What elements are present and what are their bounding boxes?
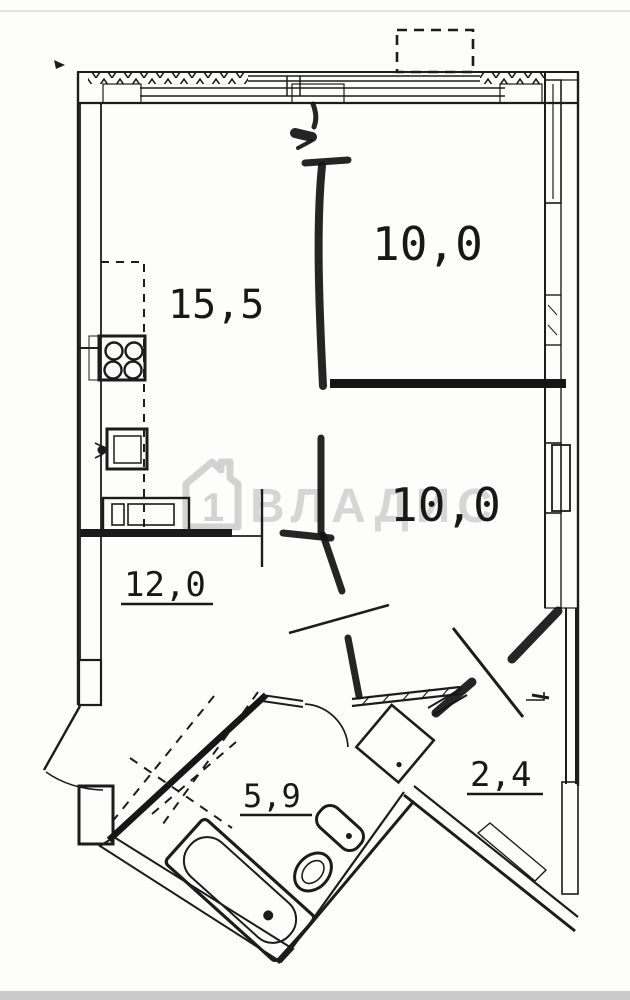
top-wall-insulation-right bbox=[480, 71, 546, 84]
room-label-bedroom-top: 10,0 bbox=[372, 217, 483, 271]
pen-mark-top bbox=[313, 104, 316, 127]
floor-plan-page: 1 ВЛАДИС bbox=[0, 0, 630, 1000]
room-label-kitchen: 15,5 bbox=[168, 282, 264, 328]
top-wall-insulation-left bbox=[88, 71, 248, 84]
pen-wall-top-bar bbox=[305, 160, 348, 163]
bedroom-divider-wall bbox=[330, 379, 566, 388]
photo-bottom-edge bbox=[0, 991, 630, 1000]
pen-new-partition bbox=[319, 166, 323, 386]
room-label-bedroom-middle: 10,0 bbox=[390, 478, 501, 532]
room-label-storage: 2,4 bbox=[470, 755, 531, 795]
floor-plan-drawing: 1 ВЛАДИС bbox=[0, 0, 630, 1000]
watermark-house-number: 1 bbox=[202, 486, 224, 530]
photo-top-edge bbox=[0, 10, 630, 12]
room-label-bathroom: 5,9 bbox=[243, 777, 301, 815]
room-label-hallway: 12,0 bbox=[124, 565, 206, 605]
